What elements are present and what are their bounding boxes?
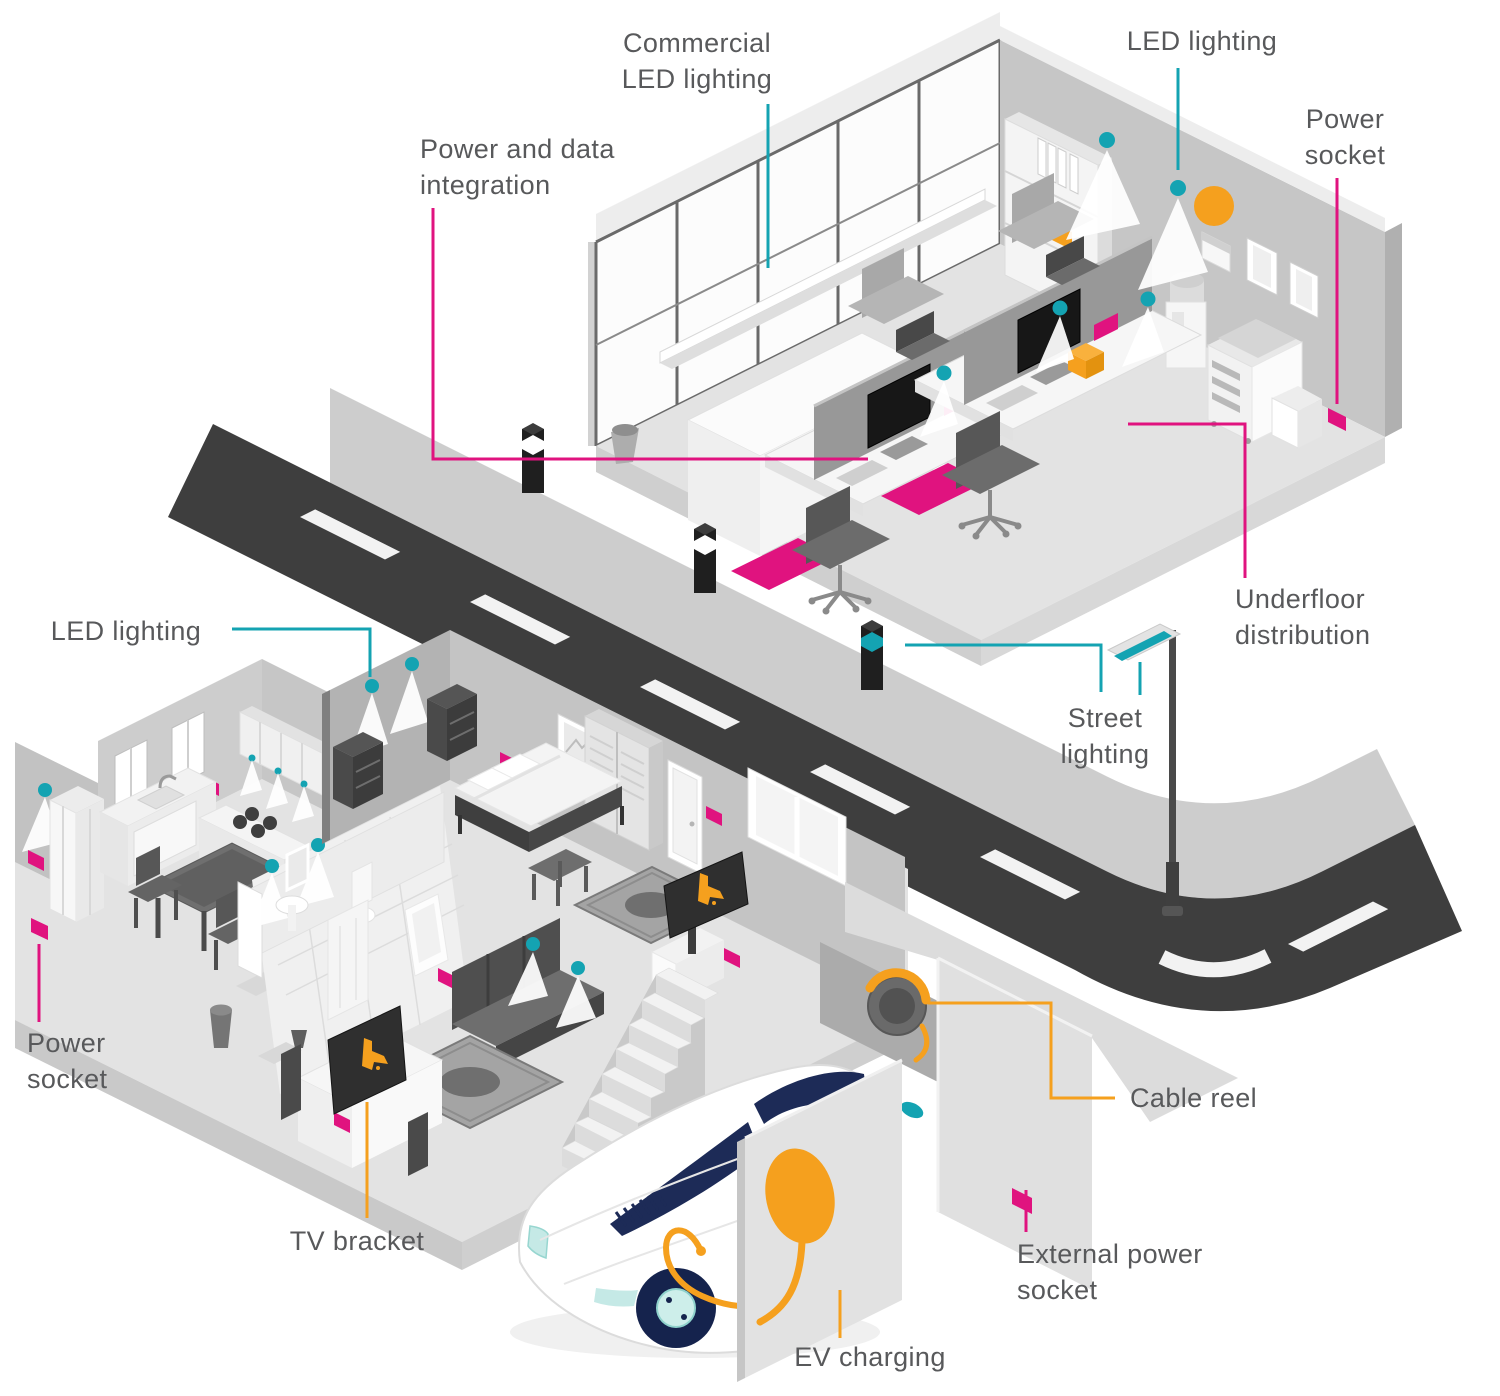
nightstand [333,732,383,809]
downlight-icon [898,1099,926,1122]
speaker [281,1044,301,1120]
label-led-lighting-house: LED lighting [51,616,201,646]
label-power-socket-office: Power socket [1305,104,1386,170]
orange-blob-icon [1194,186,1234,226]
label-power-and-data-integration: Power and data integration [420,134,615,200]
label-underfloor-distribution: Underfloor distribution [1235,584,1370,650]
bathroom-door [238,882,262,978]
downlight-icon [38,783,52,797]
label-text: socket [1017,1275,1098,1305]
downlight-icon [405,657,419,671]
label-external-power-socket: External power socket [1017,1239,1203,1305]
label-text: LED lighting [622,64,772,94]
label-text: Power [1306,104,1385,134]
label-text: distribution [1235,620,1370,650]
downlight-icon [1170,180,1186,196]
label-text: socket [1305,140,1386,170]
label-text: Cable reel [1130,1083,1257,1113]
label-text: LED lighting [51,616,201,646]
label-text: socket [27,1064,108,1094]
downlight-icon [365,679,379,693]
label-text: Street [1068,703,1143,733]
downlight-icon [1053,301,1068,316]
nightstand [427,684,477,761]
downlight-icon [265,859,279,873]
label-text: Commercial [623,28,771,58]
headlight [594,1288,638,1307]
label-ev-charging: EV charging [794,1342,946,1372]
label-text: TV bracket [290,1226,425,1256]
label-street-lighting: Street lighting [1061,703,1150,769]
downlight-icon [937,366,952,381]
label-text: Power [27,1028,106,1058]
smart-bollard-icon [861,620,883,690]
downlight-icon [1099,132,1115,148]
smart-electrics-scene: Commercial LED lighting LED lighting Pow… [0,0,1500,1391]
speaker [408,1112,428,1176]
label-text: integration [420,170,551,200]
office-cabinet [1272,386,1322,448]
downlight-icon [571,961,585,975]
label-led-lighting-office: LED lighting [1127,26,1277,56]
fridge [50,786,104,922]
bedroom-door [668,760,702,874]
infographic-canvas: Commercial LED lighting LED lighting Pow… [0,0,1500,1391]
label-tv-bracket: TV bracket [290,1226,425,1256]
label-cable-reel: Cable reel [1130,1083,1257,1113]
label-text: Power and data [420,134,615,164]
smart-bollard-icon [694,523,716,593]
downlight-icon [526,937,540,951]
label-text: EV charging [794,1342,946,1372]
label-commercial-led-lighting: Commercial LED lighting [622,28,772,94]
label-text: Underfloor [1235,584,1365,614]
label-text: LED lighting [1127,26,1277,56]
label-text: lighting [1061,739,1150,769]
shower [328,900,368,1020]
label-text: External power [1017,1239,1203,1269]
